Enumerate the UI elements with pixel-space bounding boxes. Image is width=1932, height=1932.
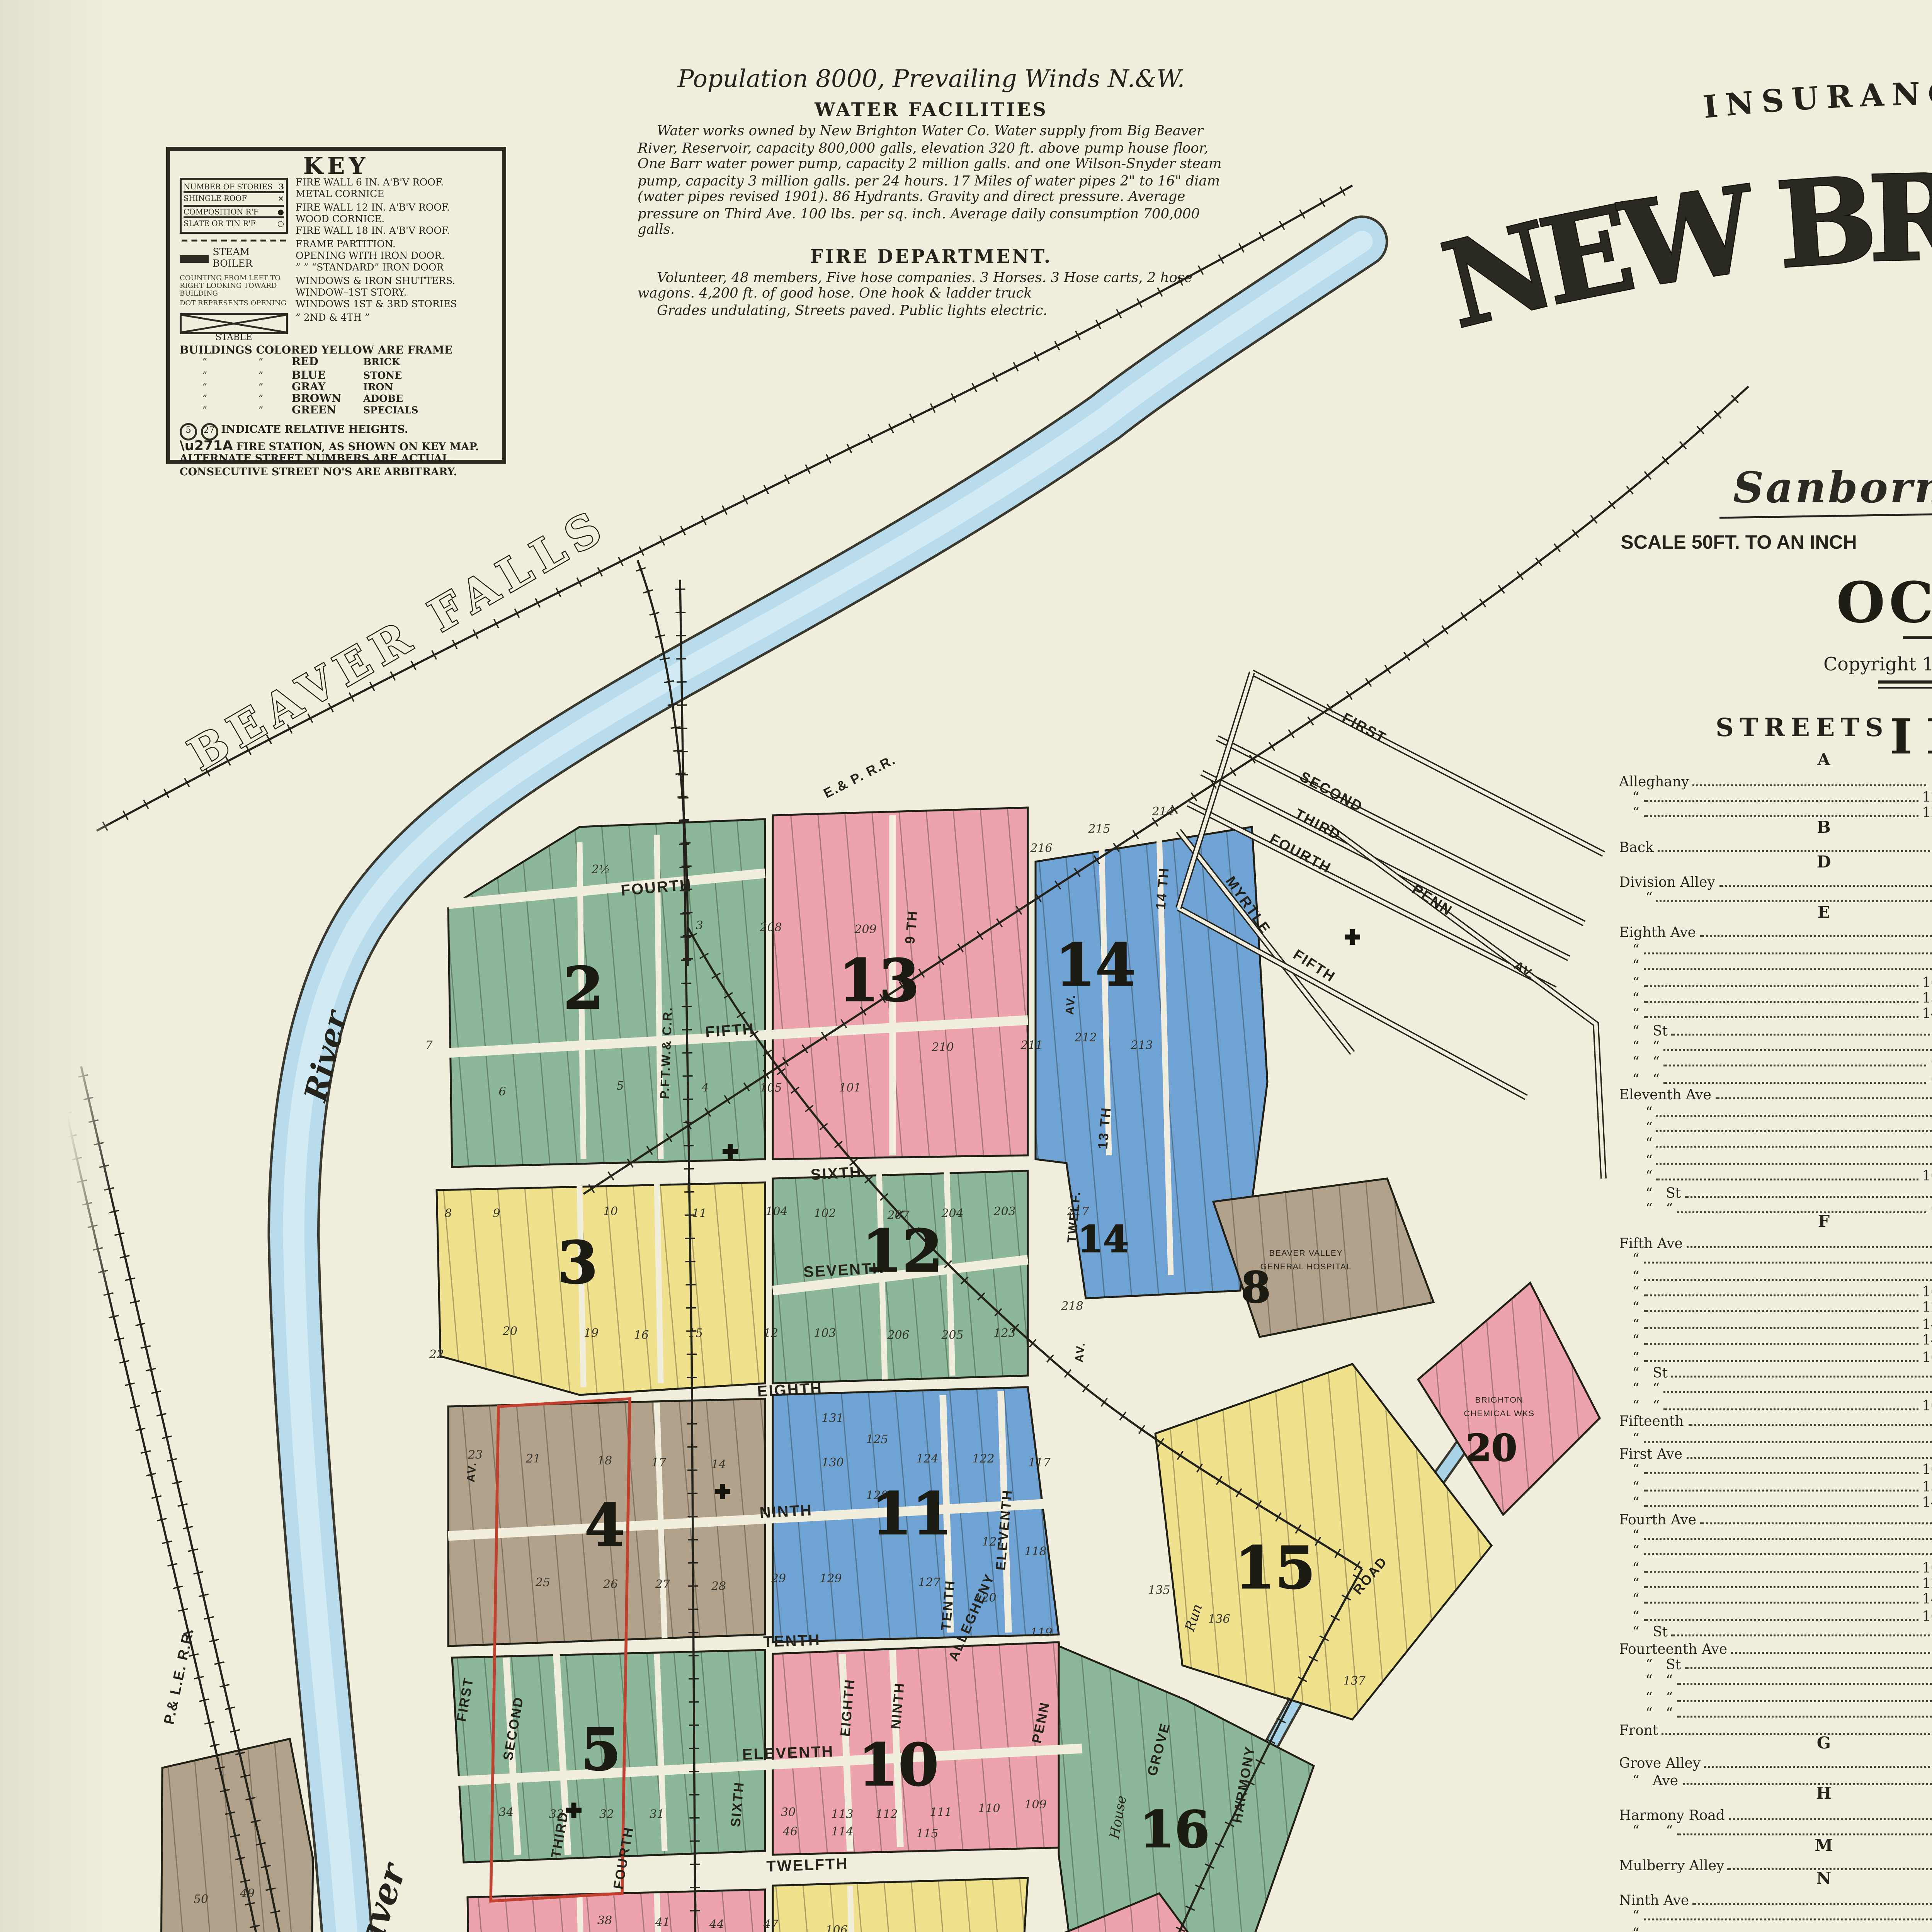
consecutive-numbers-note: CONSECUTIVE STREET NO'S ARE ARBITRARY. [180, 468, 493, 480]
index-entry: Fourteenth Ave14 [1619, 1639, 1932, 1656]
key-color-row: ””BLUESTONE [180, 370, 493, 382]
block-number: 203 [993, 1205, 1015, 1218]
block-number: 112 [876, 1808, 898, 1821]
block-number: 6 [498, 1085, 506, 1099]
district-number-15: 15 [1235, 1534, 1316, 1602]
index-entry: Eighth Ave300–52713 [1619, 924, 1932, 940]
block-number: 2½ [591, 863, 610, 876]
index-entry: “ Ave733–86215 [1619, 1771, 1932, 1787]
index-entry: “1200–1410*16 [1619, 788, 1932, 804]
block-number: 123 [993, 1327, 1015, 1340]
title-block: INSURANCE MAPS OF NEW BRIGHTON BEAVER CO… [1430, 0, 1932, 773]
block-number: 47 [763, 1918, 779, 1931]
index-entry: “ “600–804*8 [1619, 1688, 1932, 1704]
block-number: 5 [616, 1079, 624, 1093]
district-number-20: 20 [1466, 1427, 1517, 1469]
index-entry: Eleventh Ave325–34614 [1619, 1086, 1932, 1102]
block-number: 137 [1343, 1674, 1366, 1688]
index-letter-A: A [1619, 753, 1932, 772]
index-entry: “ St2 [1619, 1623, 1932, 1639]
index-entry: “1201–1411*15 [1619, 804, 1932, 820]
block-number: 22 [429, 1348, 444, 1361]
block-number: 127 [918, 1576, 940, 1589]
index-header: STREETS SHEET SHEET [1619, 715, 1932, 753]
block-number: 111 [930, 1806, 952, 1819]
fire-station-cross-icon: \u271A [180, 438, 233, 454]
index-entry: “ “600–92713 [1619, 1380, 1932, 1396]
stable-symbol [180, 313, 288, 334]
railroad-label: E.& P. R.R. [821, 752, 898, 801]
block-number: 7 [425, 1039, 433, 1052]
index-entry: Back18 [1619, 839, 1932, 855]
index-entry: “1200–13296 [1619, 1299, 1932, 1315]
frame-partition-symbol [182, 239, 286, 241]
block-number: 209 [854, 923, 876, 936]
block-number: 10 [603, 1205, 618, 1218]
block-number: 103 [814, 1327, 836, 1340]
index-entry: “1400–14578 [1619, 1005, 1932, 1021]
facility-label: BRIGHTON [1475, 1395, 1523, 1405]
index-entry: “600–7333 [1619, 1526, 1932, 1543]
streets-heading: STREETS [1716, 715, 1889, 744]
index-entry: “800–92711 [1619, 1151, 1932, 1167]
index-entry: “800–9254 [1619, 1267, 1932, 1283]
railroad-label: P.& L.E. R.R. [160, 1626, 197, 1726]
block-number: 15 [688, 1327, 703, 1340]
district-number-10: 10 [858, 1731, 939, 1799]
index-entry: “1400–14817 [1619, 1494, 1932, 1510]
index-entry: “1300–13196 [1619, 1478, 1932, 1494]
block-number: 50 [194, 1893, 208, 1906]
block-number: 46 [782, 1825, 798, 1838]
block-number: 212 [1074, 1031, 1097, 1044]
index-entry: “1600–171517 [1619, 1607, 1932, 1623]
block-number: 204 [941, 1207, 963, 1220]
index-entry: Ninth Ave310–34113 [1619, 1891, 1932, 1908]
railroad-tie [1120, 1412, 1126, 1420]
key-table-row: COMPOSITION R'F● [184, 206, 284, 219]
key-caption: DOT REPRESENTS OPENING [180, 299, 288, 307]
key-caption: COUNTING FROM LEFT TO RIGHT LOOKING TOWA… [180, 274, 288, 299]
index-entry: “800–93311 [1619, 1924, 1932, 1932]
relative-heights-note: 5 27 INDICATE RELATIVE HEIGHTS. [180, 423, 493, 440]
block-number: 210 [931, 1041, 954, 1054]
block-number: 130 [821, 1456, 844, 1469]
street-label-twelfth: TWELFTH [766, 1855, 849, 1875]
key-color-row: ””GRAYIRON [180, 382, 493, 394]
index-entry: “ “900–92116 [1619, 1822, 1932, 1838]
block-number: 122 [972, 1452, 994, 1466]
block-number: 216 [1030, 842, 1052, 855]
block-number: 113 [831, 1808, 853, 1821]
key-footnotes: 5 27 INDICATE RELATIVE HEIGHTS. \u271A F… [180, 423, 493, 480]
key-line: FRAME PARTITION. [296, 239, 493, 252]
index-entry: “1000–11355 [1619, 1283, 1932, 1299]
block-number: 110 [978, 1802, 1000, 1815]
district-number-14: 14 [1078, 1218, 1129, 1261]
district-8-lot-lines [1213, 1179, 1434, 1337]
key-line: FIRE WALL 18 IN. A'B'V ROOF. [296, 227, 493, 239]
index-entry: “ “701–821*9 [1619, 1704, 1932, 1721]
index-entry: “600–73912 [1619, 1908, 1932, 1924]
key-color-row: ””GREENSPECIALS [180, 406, 493, 418]
block-number: 44 [709, 1918, 724, 1931]
water-facilities-text: Water works owned by New Brighton Water … [638, 124, 1225, 239]
block-number: 106 [825, 1923, 847, 1932]
block-number: 125 [866, 1433, 888, 1446]
block-number: 32 [599, 1808, 614, 1821]
key-table-row: SHINGLE ROOF× [184, 194, 284, 206]
key-color-row: BUILDINGS COLORED YELLOW ARE FRAME [180, 346, 493, 358]
fire-department-heading: FIRE DEPARTMENT. [638, 247, 1225, 268]
title-kicker: INSURANCE MAPS OF [1701, 75, 1932, 126]
index-entry: “500–558*13 [1619, 1102, 1932, 1119]
index-entry: “ St98–512*4 [1619, 1021, 1932, 1037]
district-number-12: 12 [862, 1217, 943, 1285]
key-line: METAL CORNICE [296, 190, 493, 202]
street-corridor [657, 1182, 661, 1383]
index-entry: “1000–113510 [1619, 973, 1932, 989]
index-letter-N: N [1619, 1873, 1932, 1891]
index-entry: “ St100–5135 [1619, 1184, 1932, 1200]
index-entry: “600–7333 [1619, 889, 1932, 906]
title-copyright: Copyright 1906, by the Sanborn Map Co. [1823, 654, 1932, 675]
block-number: 29 [771, 1572, 786, 1585]
block-number: 27 [655, 1578, 670, 1591]
facility-label: GENERAL HOSPITAL [1260, 1262, 1352, 1271]
key-symbol-column: NUMBER OF STORIES3SHINGLE ROOF×COMPOSITI… [180, 178, 288, 346]
title-publisher: Sanborn Map Company [1733, 463, 1932, 512]
block-number: 49 [240, 1887, 255, 1900]
block-number: 109 [1024, 1798, 1046, 1811]
block-number: 17 [651, 1456, 667, 1469]
block-number: 14 [711, 1458, 726, 1471]
block-number: 8 [444, 1207, 452, 1220]
block-number: 28 [711, 1580, 726, 1593]
index-entry: First Ave900–9374 [1619, 1445, 1932, 1461]
index-entry: Front18 [1619, 1721, 1932, 1737]
title-scale: SCALE 50FT. TO AN INCH [1621, 531, 1857, 553]
block-number: 101 [839, 1081, 861, 1095]
grades-line: Grades undulating, Streets paved. Public… [638, 303, 1225, 319]
index-entry: “1000–102910 [1619, 1167, 1932, 1184]
block-number: 218 [1061, 1299, 1083, 1313]
facility-label: BEAVER VALLEY [1269, 1248, 1343, 1258]
sanborn-map-sheet: 2½76543208209210105101216215214211212213… [0, 0, 1932, 1932]
railroad-tie [680, 843, 690, 843]
index-entry: Fifteenth300–4117 [1619, 1413, 1932, 1429]
district-number-8: 8 [1241, 1262, 1271, 1312]
key-table-row: NUMBER OF STORIES3 [184, 182, 284, 194]
block-number: 211 [1020, 1039, 1043, 1052]
key-line: ” 2ND & 4TH ” [296, 313, 493, 325]
statistics-block: Population 8000, Prevailing Winds N.&W. … [638, 66, 1225, 319]
index-entry: Fifth Ave300–5272 [1619, 1234, 1932, 1250]
index-entry: “1000–10375 [1619, 1461, 1932, 1478]
index-entry: “800–9854 [1619, 1542, 1932, 1558]
index-entry: “ “1000–130514 [1619, 1396, 1932, 1413]
block-number: 38 [597, 1914, 612, 1927]
index-entry: Mulberry Alley200–6133 [1619, 1857, 1932, 1873]
key-line: FIRE WALL 6 IN. A'B'V ROOF. [296, 178, 493, 190]
index-entry: Alleghany700–110911 [1619, 772, 1932, 788]
block-number: 31 [650, 1808, 664, 1821]
block-number: 124 [916, 1452, 938, 1466]
index-entry: Grove Alley15 [1619, 1755, 1932, 1771]
index-letter-H: H [1619, 1787, 1932, 1806]
street-label-first: FIRST [1340, 709, 1389, 746]
block-number: 114 [831, 1825, 853, 1838]
index-entry: Harmony Road700–80515 [1619, 1806, 1932, 1822]
key-line: FIRE WALL 12 IN. A'B'V ROOF. [296, 202, 493, 214]
key-lines: FIRE WALL 6 IN. A'B'V ROOF.METAL CORNICE… [296, 178, 493, 346]
block-number: 26 [603, 1578, 618, 1591]
block-number: 136 [1208, 1612, 1230, 1626]
railroad-tie [682, 866, 692, 866]
block-number: 205 [941, 1328, 963, 1342]
district-number-2: 2 [563, 954, 604, 1022]
district-number-3: 3 [558, 1229, 598, 1297]
block-number: 11 [692, 1207, 707, 1220]
block-number: 30 [781, 1806, 796, 1819]
water-facilities-heading: WATER FACILITIES [638, 100, 1225, 122]
block-number: 118 [1024, 1545, 1046, 1558]
index-entry: “ St300–512*7 [1619, 1656, 1932, 1672]
index-letter-D: D [1619, 855, 1932, 874]
index-entry: “ “301–511*6 [1619, 1672, 1932, 1688]
street-index: STREETS SHEET SHEET AAlleghany700–110911… [1619, 715, 1932, 1932]
fire-station-cross-icon [1350, 929, 1355, 945]
block-number: 117 [1028, 1456, 1051, 1469]
index-entry: “1400–1526*7 [1619, 1315, 1932, 1332]
district-number-13: 13 [839, 947, 920, 1015]
fire-station-cross-icon [728, 1144, 733, 1159]
index-entry: Division Alley400–5192 [1619, 873, 1932, 889]
index-entry: “600–73712 [1619, 1135, 1932, 1151]
index-entry: “600–7373 [1619, 1250, 1932, 1267]
alternate-numbers-note: ALTERNATE STREET NUMBERS ARE ACTUAL. [180, 455, 493, 468]
key-line: WINDOWS & IRON SHUTTERS. [296, 276, 493, 288]
block-number: 19 [584, 1327, 599, 1340]
title-date: OCT. 1906 [1836, 570, 1932, 636]
key-color-row: ””REDBRICK [180, 358, 493, 370]
block-number: 34 [499, 1806, 514, 1819]
street-label-tenth: TENTH [763, 1631, 821, 1650]
index-letter-M: M [1619, 1838, 1932, 1857]
block-number: 25 [535, 1576, 550, 1589]
index-letter-F: F [1619, 1216, 1932, 1235]
index-entry: “ “601–1109*12 [1619, 1070, 1932, 1086]
population-line: Population 8000, Prevailing Winds N.&W. [638, 66, 1225, 93]
scan-edge-left [0, 0, 112, 1932]
street-label-fifth: FIFTH [705, 1020, 755, 1041]
block-number: 104 [765, 1205, 787, 1218]
index-entry: “1200–13296 [1619, 1575, 1932, 1591]
street-label-eleventh: ELEVENTH [742, 1743, 834, 1763]
block-number: 129 [820, 1572, 842, 1585]
map-key-legend: KEY NUMBER OF STORIES3SHINGLE ROOF×COMPO… [166, 147, 506, 464]
fire-department-text: Volunteer, 48 members, Five hose compani… [638, 270, 1225, 303]
district-9-lot-lines [773, 1878, 1028, 1932]
block-number: 119 [1030, 1626, 1052, 1639]
key-line: OPENING WITH IRON DOOR. [296, 251, 493, 264]
index-entry: “1600–174317 [1619, 1348, 1932, 1364]
index-entry: Fourth Ave400–5272 [1619, 1510, 1932, 1526]
block-number: 115 [916, 1827, 938, 1840]
key-line: WOOD CORNICE. [296, 214, 493, 227]
railroad-tie [1139, 1425, 1145, 1434]
index-entry: “ “600–1108*11 [1619, 1054, 1932, 1070]
block-number: 41 [655, 1916, 670, 1929]
block-number: 16 [634, 1328, 649, 1342]
block-number: 12 [764, 1327, 778, 1340]
block-number: 206 [887, 1328, 909, 1342]
street-label-av-: AV. [1073, 1341, 1088, 1363]
index-entry: “800–93511 [1619, 957, 1932, 973]
index-entry: “501–571*14 [1619, 1119, 1932, 1135]
stable-label: STABLE [180, 334, 288, 346]
key-heading: KEY [180, 155, 493, 178]
facility-label: CHEMICAL WKS [1464, 1409, 1534, 1418]
index-entry: “1401–1527*8 [1619, 1332, 1932, 1348]
street-label-second: SECOND [1297, 768, 1366, 815]
block-number: 208 [759, 921, 782, 934]
district-number-11: 11 [872, 1480, 952, 1548]
key-line: ” ” “STANDARD” IRON DOOR [296, 264, 493, 276]
steam-boiler-symbol: STEAM BOILER [180, 247, 288, 270]
title-main: NEW BRIGHTON [1430, 148, 1932, 355]
block-number: 20 [502, 1325, 517, 1338]
block-number: 102 [814, 1207, 836, 1220]
index-entry: “1300–13359 [1619, 989, 1932, 1005]
block-number: 21 [526, 1452, 541, 1466]
index-letter-E: E [1619, 906, 1932, 924]
fire-station-cross-icon [571, 1803, 577, 1818]
key-color-legend: BUILDINGS COLORED YELLOW ARE FRAME””REDB… [180, 346, 493, 418]
street-label-sixth: SIXTH [810, 1164, 862, 1184]
fire-station-cross-icon [720, 1484, 725, 1499]
index-letter-B: B [1619, 820, 1932, 839]
street-label-ninth: NINTH [759, 1502, 813, 1521]
key-line: WINDOW–1ST STORY. [296, 288, 493, 300]
index-entry: “ St200–5212 [1619, 1364, 1932, 1380]
street-label-eighth: EIGHTH [757, 1380, 823, 1400]
fire-station-note: \u271A FIRE STATION, AS SHOWN ON KEY MAP… [180, 440, 493, 455]
district-number-4: 4 [585, 1492, 625, 1560]
block-number: 213 [1130, 1039, 1153, 1052]
key-color-row: ””BROWNADOBE [180, 395, 493, 406]
street-label-av-: AV. [464, 1461, 479, 1483]
index-entry: “ “201–511*3 [1619, 1037, 1932, 1054]
district-number-14: 14 [1055, 931, 1136, 999]
block-number: 131 [821, 1412, 844, 1425]
key-line: WINDOWS 1ST & 3RD STORIES [296, 300, 493, 313]
block-number: 9 [493, 1207, 500, 1220]
district-number-5: 5 [581, 1716, 621, 1784]
road-casing [1329, 827, 1604, 1179]
block-number: 3 [696, 919, 703, 932]
district-number-16: 16 [1140, 1800, 1210, 1859]
index-entry: “500–7138 [1619, 1429, 1932, 1445]
index-entry: “1400–15197 [1619, 1591, 1932, 1607]
block-number: 18 [597, 1454, 612, 1468]
index-column-1: AAlleghany700–110911 “1200–1410*16 “1201… [1619, 753, 1932, 1932]
index-letter-G: G [1619, 1737, 1932, 1755]
block-number: 135 [1148, 1583, 1170, 1597]
district-3-lot-lines [437, 1182, 765, 1395]
index-entry: “ “600–110110 [1619, 1200, 1932, 1216]
key-table-row: SLATE OR TIN R'F○ [184, 219, 284, 229]
block-number: 214 [1151, 805, 1174, 818]
block-number: 215 [1088, 822, 1110, 836]
index-entry: “600–73712 [1619, 940, 1932, 957]
block-number: 105 [760, 1081, 782, 1095]
street-label-9-th: 9 TH [902, 910, 920, 945]
index-entry: “1000–11315 [1619, 1558, 1932, 1575]
block-number: 23 [468, 1448, 483, 1462]
block-number: 4 [701, 1081, 709, 1095]
